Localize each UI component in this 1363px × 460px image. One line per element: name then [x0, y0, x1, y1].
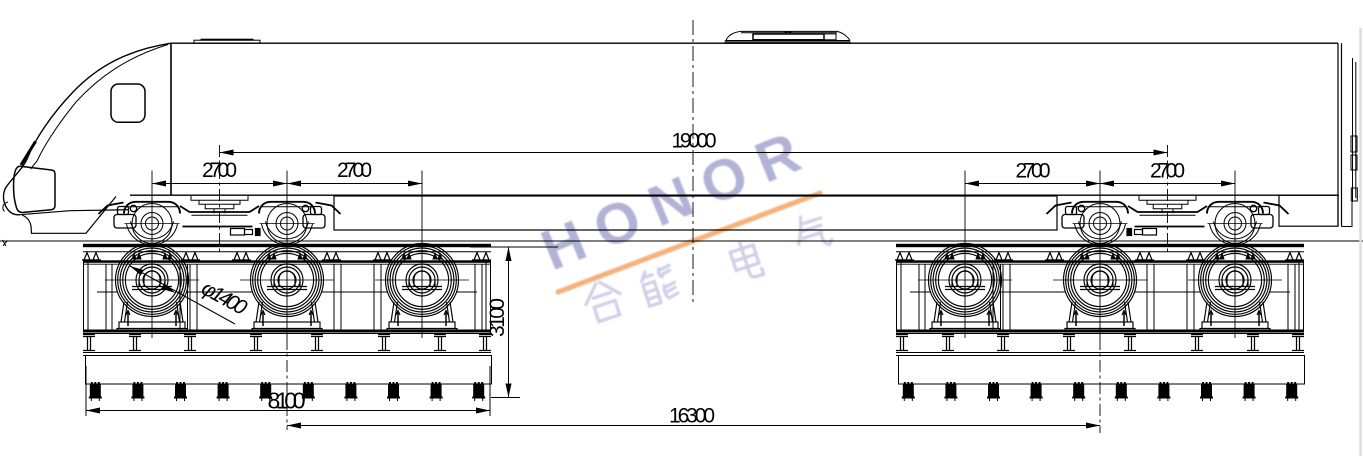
svg-text:2700: 2700	[202, 159, 237, 182]
svg-text:8100: 8100	[268, 388, 306, 414]
svg-text:2700: 2700	[1150, 160, 1185, 183]
svg-text:3100: 3100	[486, 298, 509, 337]
svg-text:16300: 16300	[669, 405, 715, 428]
svg-text:19000: 19000	[672, 130, 717, 153]
svg-text:2700: 2700	[337, 159, 372, 182]
svg-text:2700: 2700	[1016, 160, 1051, 183]
